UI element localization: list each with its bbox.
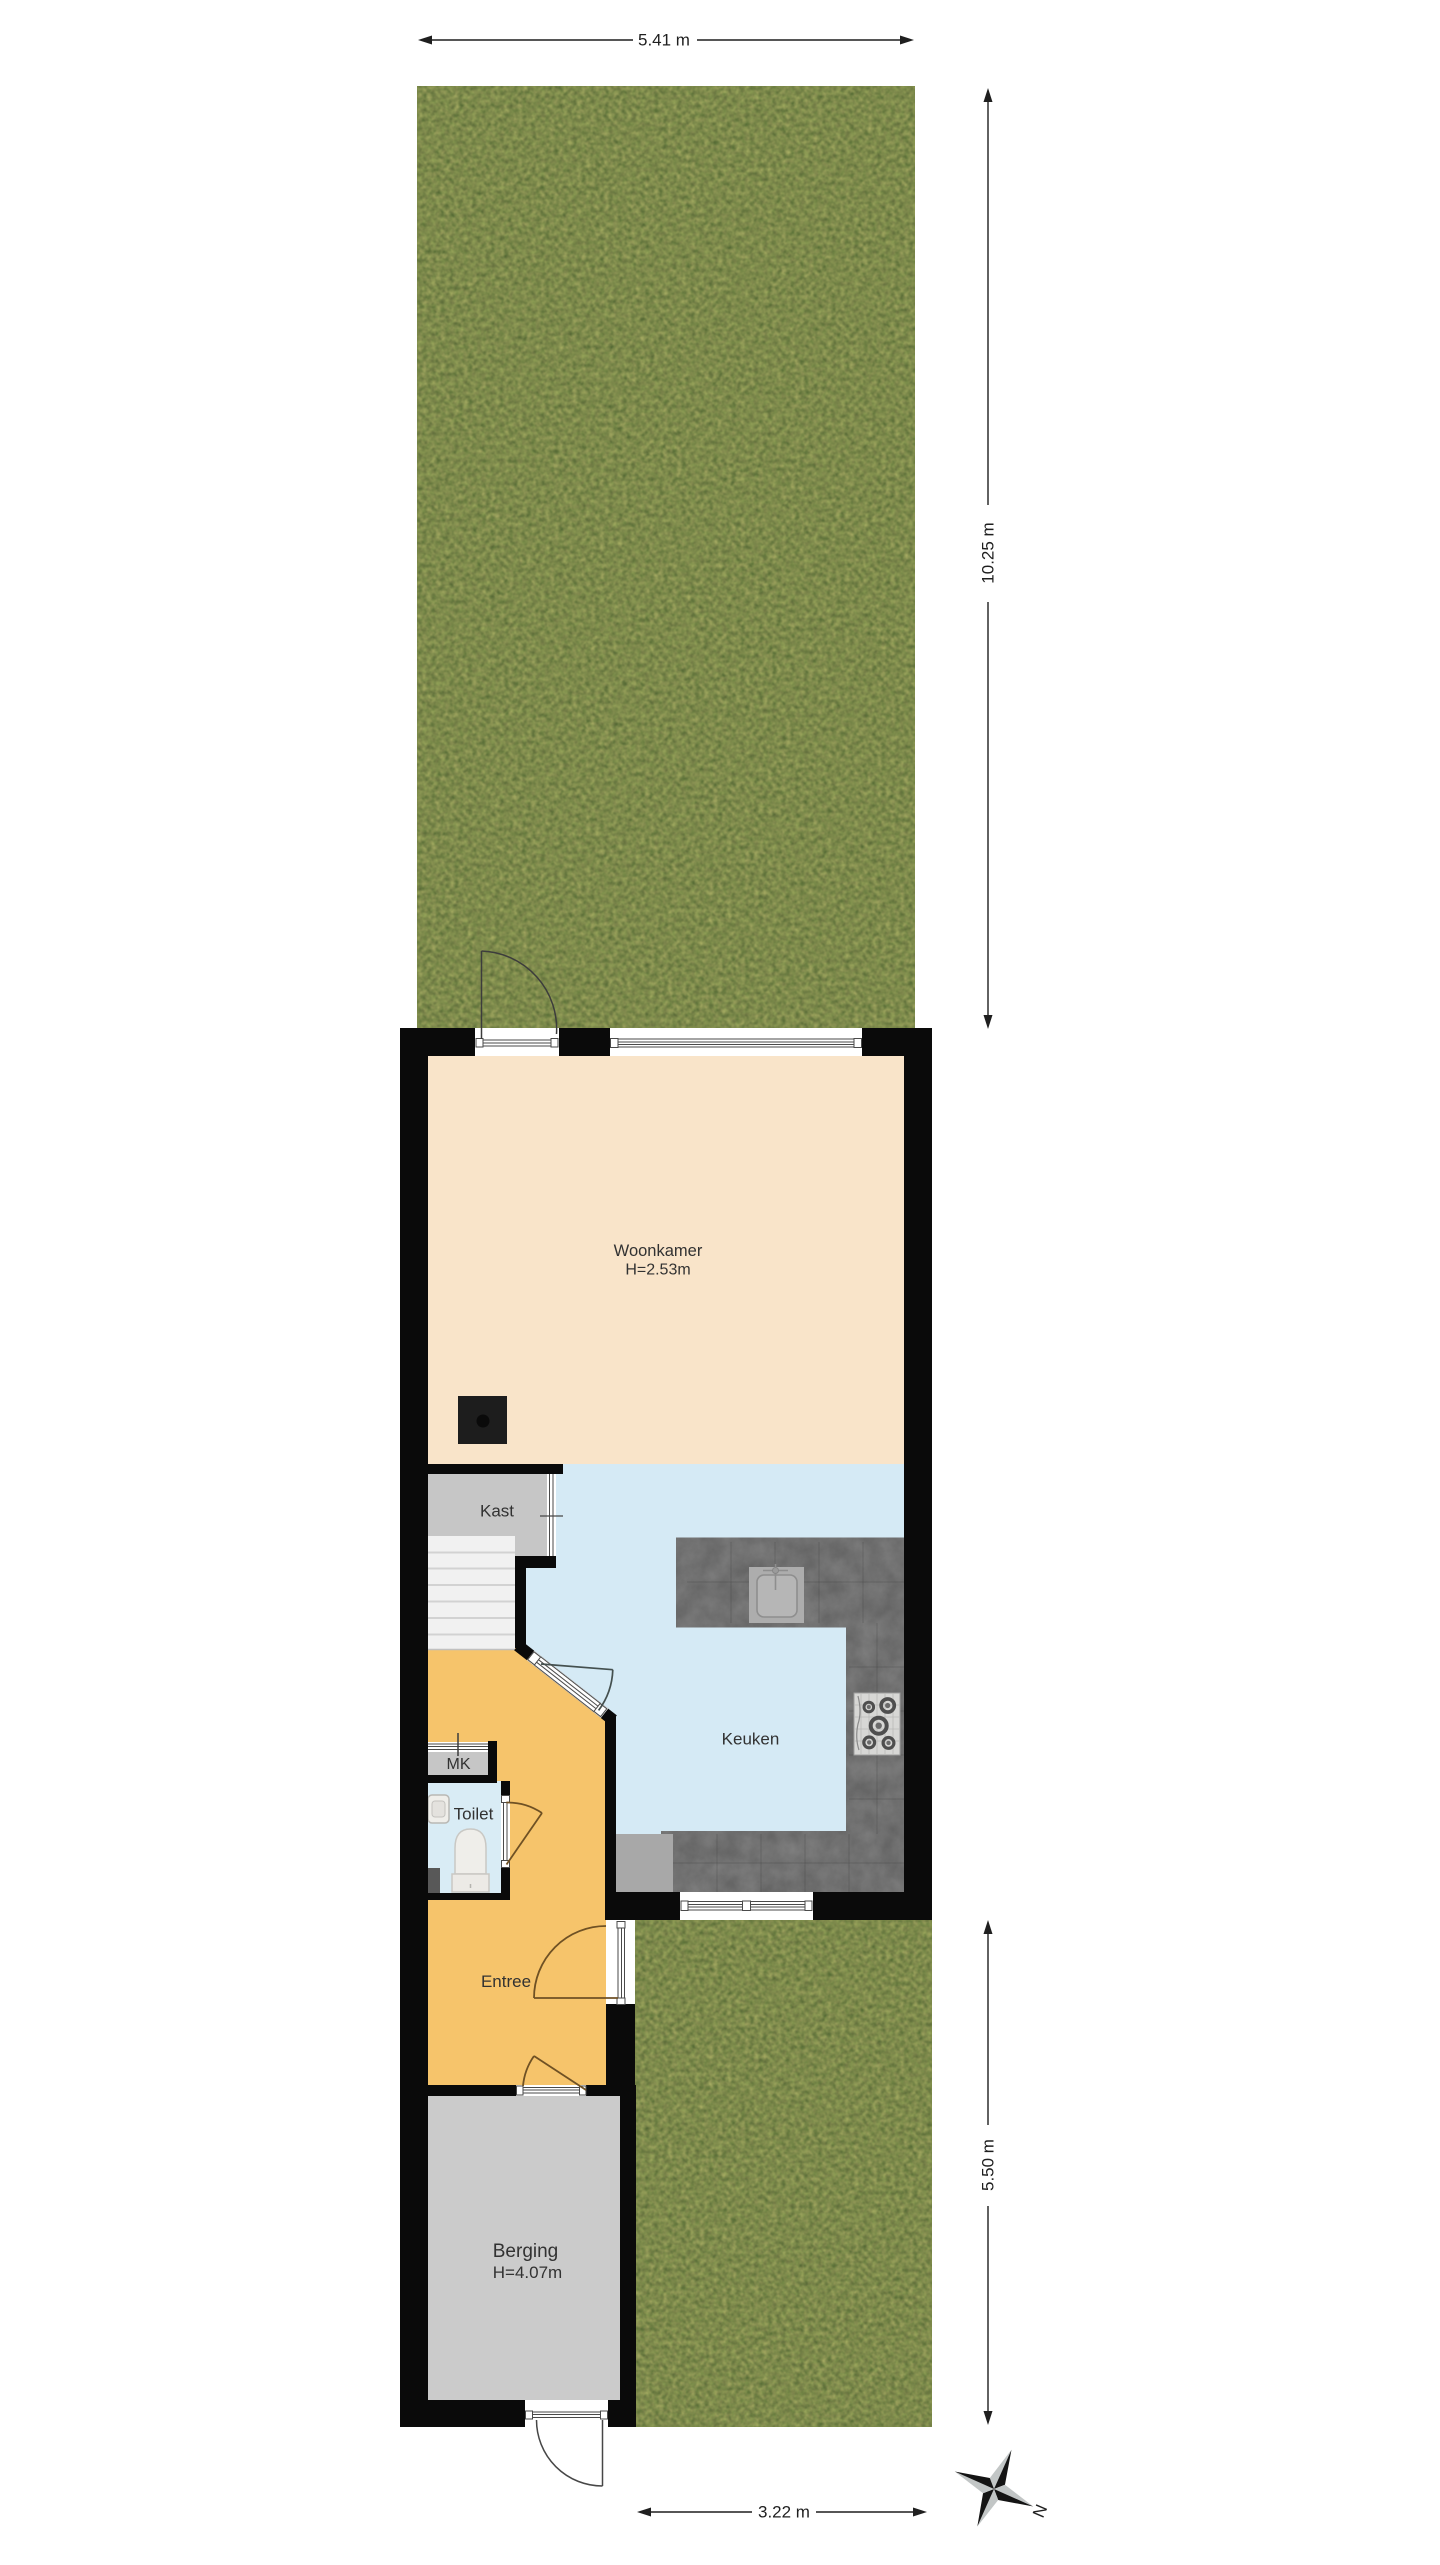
svg-text:H=2.53m: H=2.53m xyxy=(625,1262,690,1279)
svg-text:Keuken: Keuken xyxy=(722,1730,780,1749)
svg-text:MK: MK xyxy=(447,1756,471,1773)
svg-text:Toilet: Toilet xyxy=(454,1805,494,1824)
svg-text:5.50 m: 5.50 m xyxy=(979,2139,998,2191)
svg-text:H=4.07m: H=4.07m xyxy=(493,2263,562,2282)
svg-text:Kast: Kast xyxy=(480,1502,514,1521)
svg-text:Woonkamer: Woonkamer xyxy=(614,1242,703,1260)
svg-text:Entree: Entree xyxy=(481,1972,531,1991)
svg-text:5.41 m: 5.41 m xyxy=(638,31,690,50)
svg-text:10.25 m: 10.25 m xyxy=(979,522,998,583)
svg-text:Berging: Berging xyxy=(493,2241,559,2262)
svg-text:3.22 m: 3.22 m xyxy=(758,2503,810,2522)
